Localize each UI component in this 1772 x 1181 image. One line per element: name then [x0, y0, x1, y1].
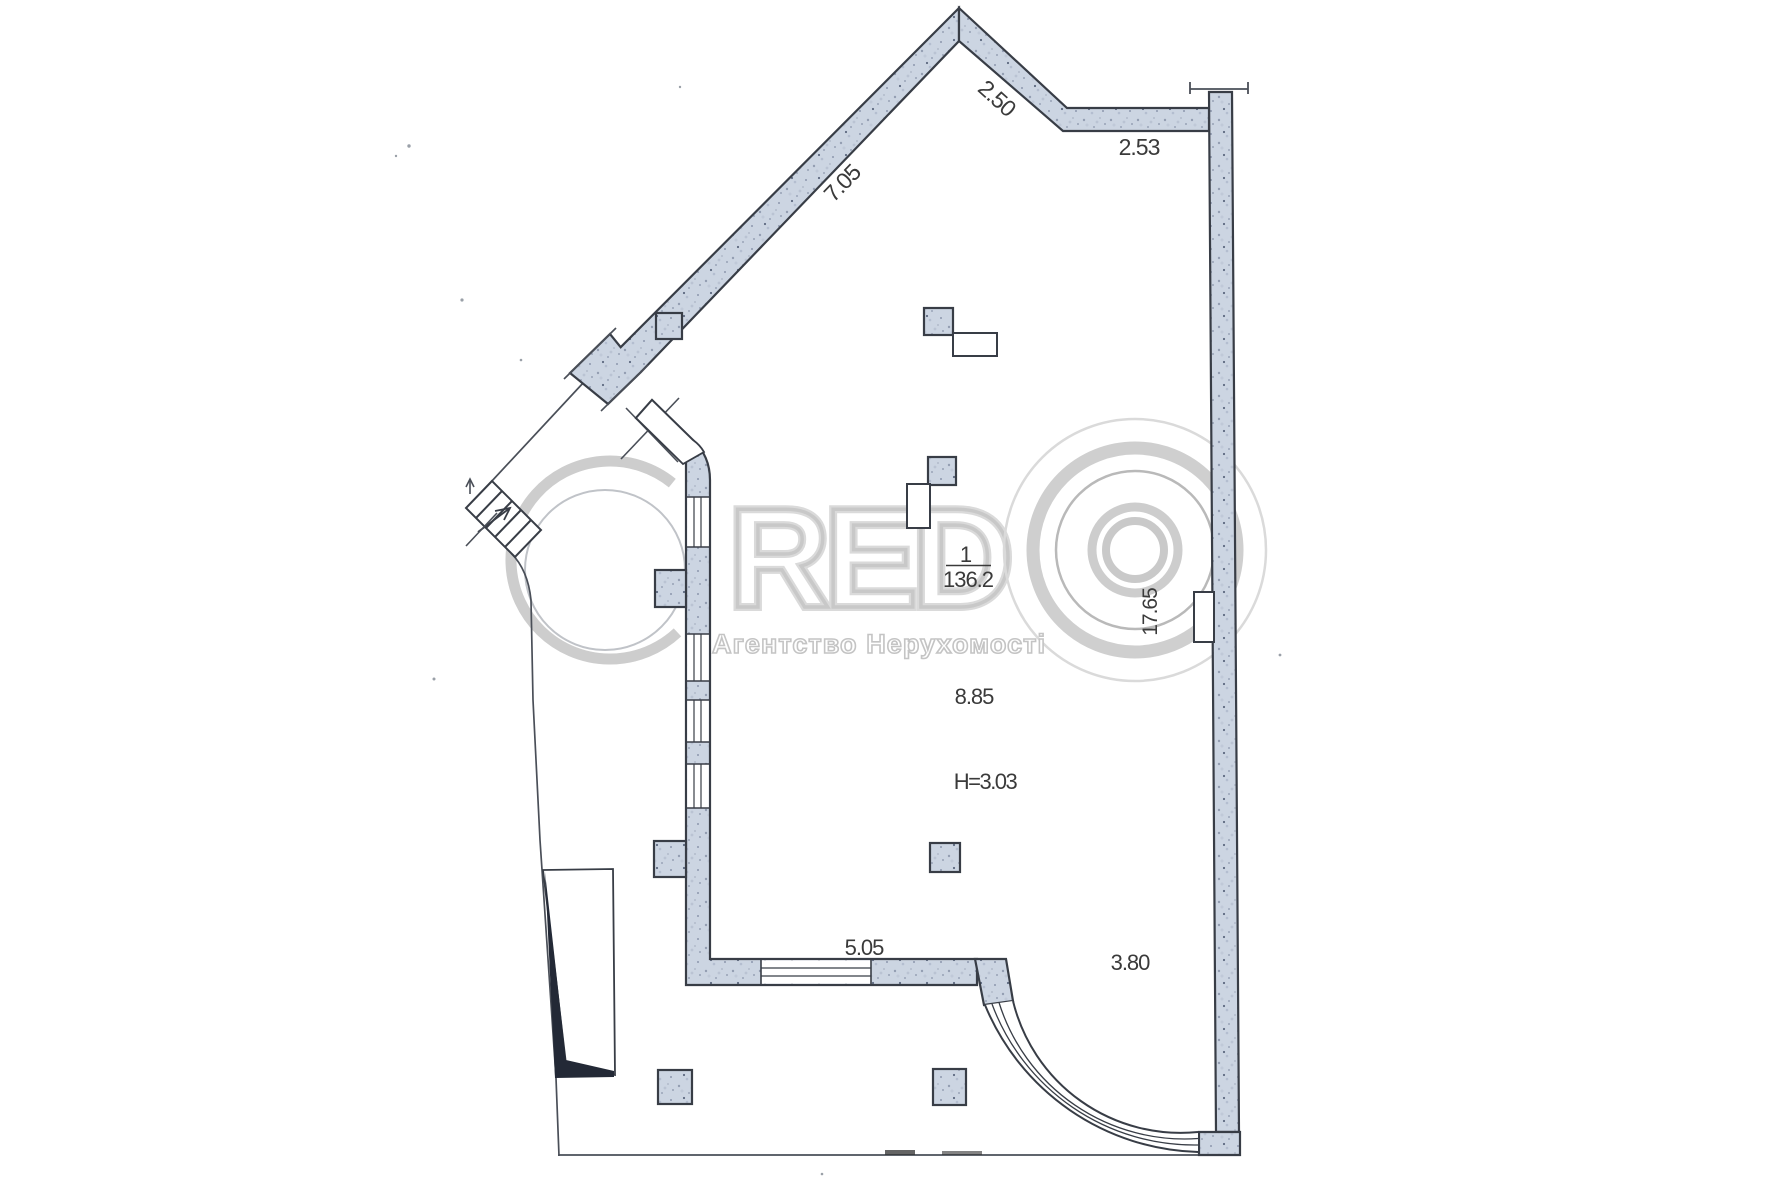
svg-text:136.2: 136.2 [943, 567, 994, 592]
svg-text:H=3.03: H=3.03 [954, 769, 1018, 794]
svg-text:2.53: 2.53 [1119, 134, 1160, 160]
svg-text:8.85: 8.85 [955, 684, 995, 709]
svg-text:5.05: 5.05 [845, 935, 885, 960]
svg-text:Агентство Нерухомості: Агентство Нерухомості [712, 629, 1046, 659]
svg-text:3.80: 3.80 [1111, 950, 1151, 975]
svg-text:17.65: 17.65 [1139, 588, 1162, 636]
svg-text:1: 1 [960, 542, 972, 567]
